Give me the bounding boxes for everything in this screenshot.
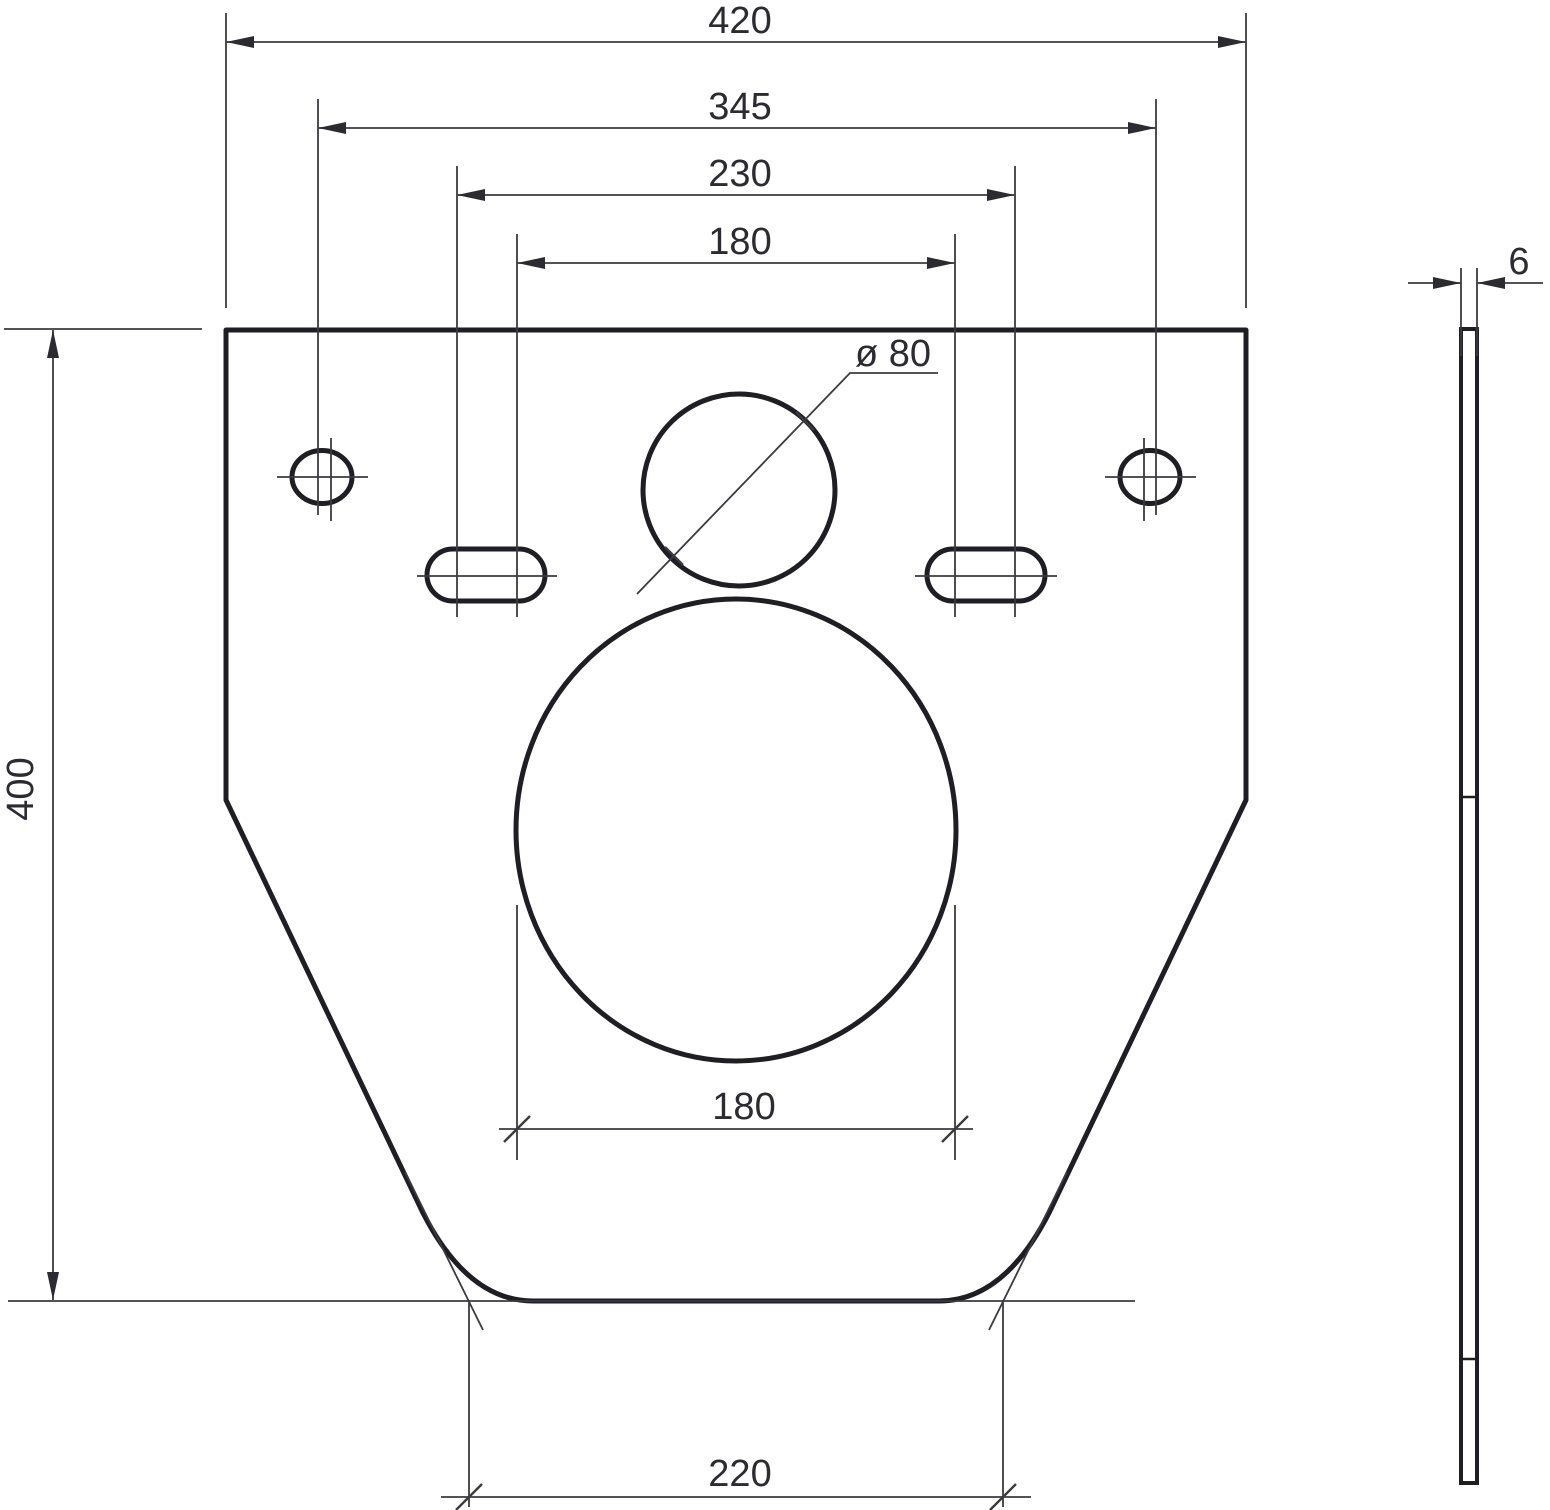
arrowhead-down bbox=[47, 1272, 59, 1300]
side-extension-right bbox=[989, 1172, 1067, 1330]
arrowhead-left bbox=[517, 257, 545, 269]
dim-180-top: 180 bbox=[517, 221, 955, 617]
arrowhead-left bbox=[1477, 277, 1505, 289]
arrowhead-right bbox=[987, 189, 1015, 201]
arrowhead-up bbox=[47, 330, 59, 358]
drawing-svg: 420 345 230 180 400 bbox=[0, 0, 1550, 1510]
arrowhead-left bbox=[226, 36, 254, 48]
dim-400-label: 400 bbox=[0, 757, 42, 820]
side-extension-left bbox=[405, 1172, 483, 1330]
dim-345: 345 bbox=[318, 86, 1156, 515]
outlet-hole bbox=[516, 599, 956, 1061]
dim-180-top-label: 180 bbox=[708, 221, 771, 263]
slat-outline bbox=[1461, 329, 1477, 1483]
side-view: 6 bbox=[1408, 241, 1543, 1483]
mounting-hole-right bbox=[1105, 438, 1196, 521]
dia-80-label: ø 80 bbox=[855, 333, 931, 375]
plate-outline bbox=[226, 330, 1246, 1301]
dim-diameter-80: ø 80 bbox=[637, 333, 938, 594]
dim-220-label: 220 bbox=[708, 1453, 771, 1495]
bolt-slot-left bbox=[417, 549, 557, 601]
arrowhead-right bbox=[927, 257, 955, 269]
arrowhead-right bbox=[1218, 36, 1246, 48]
dim-230-label: 230 bbox=[708, 153, 771, 195]
arrowhead-right bbox=[1433, 277, 1461, 289]
arrowhead-right bbox=[1128, 122, 1156, 134]
arrowhead-left bbox=[318, 122, 346, 134]
dim-220: 220 bbox=[405, 1172, 1067, 1510]
technical-drawing-page: 420 345 230 180 400 bbox=[0, 0, 1550, 1510]
arrowhead-left bbox=[457, 189, 485, 201]
dim-180-bottom: 180 bbox=[499, 905, 973, 1160]
dim-180-bottom-label: 180 bbox=[712, 1086, 775, 1128]
bolt-slot-right bbox=[915, 549, 1057, 601]
dim-6-label: 6 bbox=[1508, 241, 1529, 283]
mounting-hole-left bbox=[277, 438, 368, 521]
front-view bbox=[226, 330, 1246, 1301]
dim-420-label: 420 bbox=[708, 0, 771, 42]
dim-400: 400 bbox=[0, 329, 1135, 1301]
dim-345-label: 345 bbox=[708, 86, 771, 128]
